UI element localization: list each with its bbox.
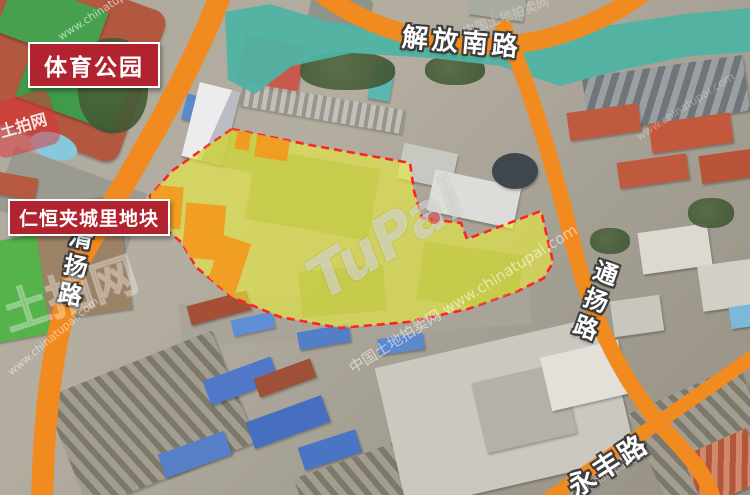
sports-park-label: 体育公园	[28, 42, 160, 88]
aerial-map: 解放南路 清扬路 通扬路 永丰路 体育公园 仁恒夹城里地块 TuPai 中国土地…	[0, 0, 750, 495]
parcel-label: 仁恒夹城里地块	[8, 199, 170, 236]
